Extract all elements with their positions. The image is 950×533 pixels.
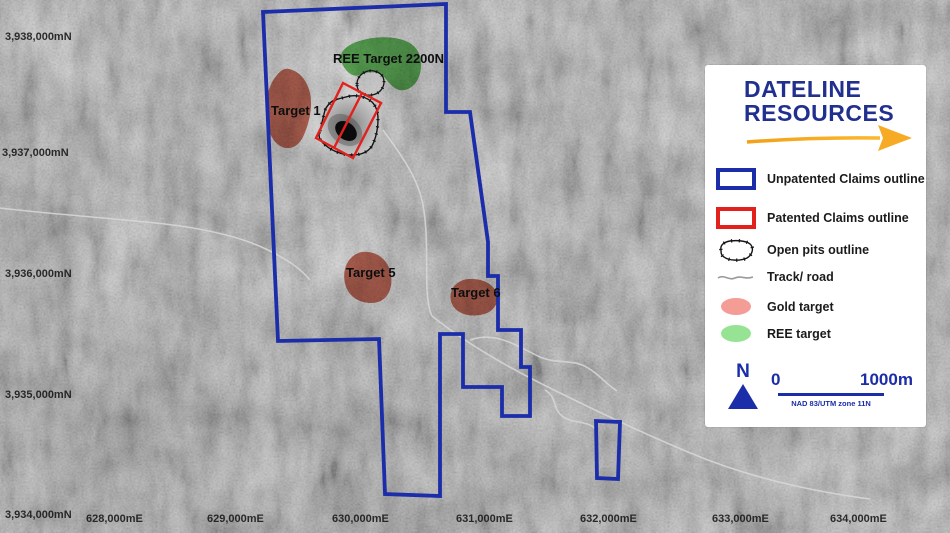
legend-item-open-pits: Open pits outline (716, 238, 869, 262)
north-label: N (727, 361, 759, 383)
legend-item-label: Track/ road (767, 270, 834, 284)
northing-label: 3,936,000mN (5, 268, 72, 280)
legend-item-label: Unpatented Claims outline (767, 172, 925, 186)
legend-item-label: Gold target (767, 300, 834, 314)
ree-target-icon (721, 325, 751, 342)
map-label-ree-target: REE Target 2200N (333, 51, 444, 66)
datum-label: NAD 83/UTM zone 11N (773, 399, 889, 408)
easting-label: 629,000mE (207, 513, 264, 525)
legend-item-ree-target: REE target (716, 325, 831, 342)
legend-item-label: Patented Claims outline (767, 211, 909, 225)
legend-item-track-road: Track/ road (716, 269, 834, 285)
north-arrow-icon (727, 383, 759, 410)
map-label-target-5: Target 5 (346, 265, 396, 280)
legend-item-label: Open pits outline (767, 243, 869, 257)
logo-arrow-icon (744, 121, 916, 155)
northing-label: 3,937,000mN (2, 147, 69, 159)
claims-map: REE Target 2200N Target 1 Target 5 Targe… (0, 0, 950, 533)
map-label-target-6: Target 6 (451, 285, 501, 300)
easting-label: 630,000mE (332, 513, 389, 525)
easting-label: 633,000mE (712, 513, 769, 525)
company-logo: DATELINE RESOURCES (744, 77, 894, 125)
legend-item-gold-target: Gold target (716, 298, 834, 315)
legend-item-label: REE target (767, 327, 831, 341)
patented-swatch-icon (716, 207, 756, 229)
scale-bar (778, 393, 884, 396)
northing-label: 3,935,000mN (5, 389, 72, 401)
legend-item-unpatented: Unpatented Claims outline (716, 168, 925, 190)
open-pit-icon (716, 238, 756, 262)
northing-label: 3,938,000mN (5, 31, 72, 43)
north-arrow: N (727, 361, 759, 415)
scale-start-label: 0 (771, 370, 780, 390)
easting-label: 631,000mE (456, 513, 513, 525)
legend-panel: DATELINE RESOURCES Unpatented Claims out… (705, 65, 926, 427)
easting-label: 628,000mE (86, 513, 143, 525)
gold-target-icon (721, 298, 751, 315)
easting-label: 632,000mE (580, 513, 637, 525)
unpatented-swatch-icon (716, 168, 756, 190)
track-road-icon (716, 269, 756, 285)
map-label-target-1: Target 1 (271, 103, 321, 118)
logo-line-1: DATELINE (744, 77, 894, 101)
northing-label: 3,934,000mN (5, 509, 72, 521)
legend-item-patented: Patented Claims outline (716, 207, 909, 229)
scale-end-label: 1000m (860, 370, 913, 390)
easting-label: 634,000mE (830, 513, 887, 525)
